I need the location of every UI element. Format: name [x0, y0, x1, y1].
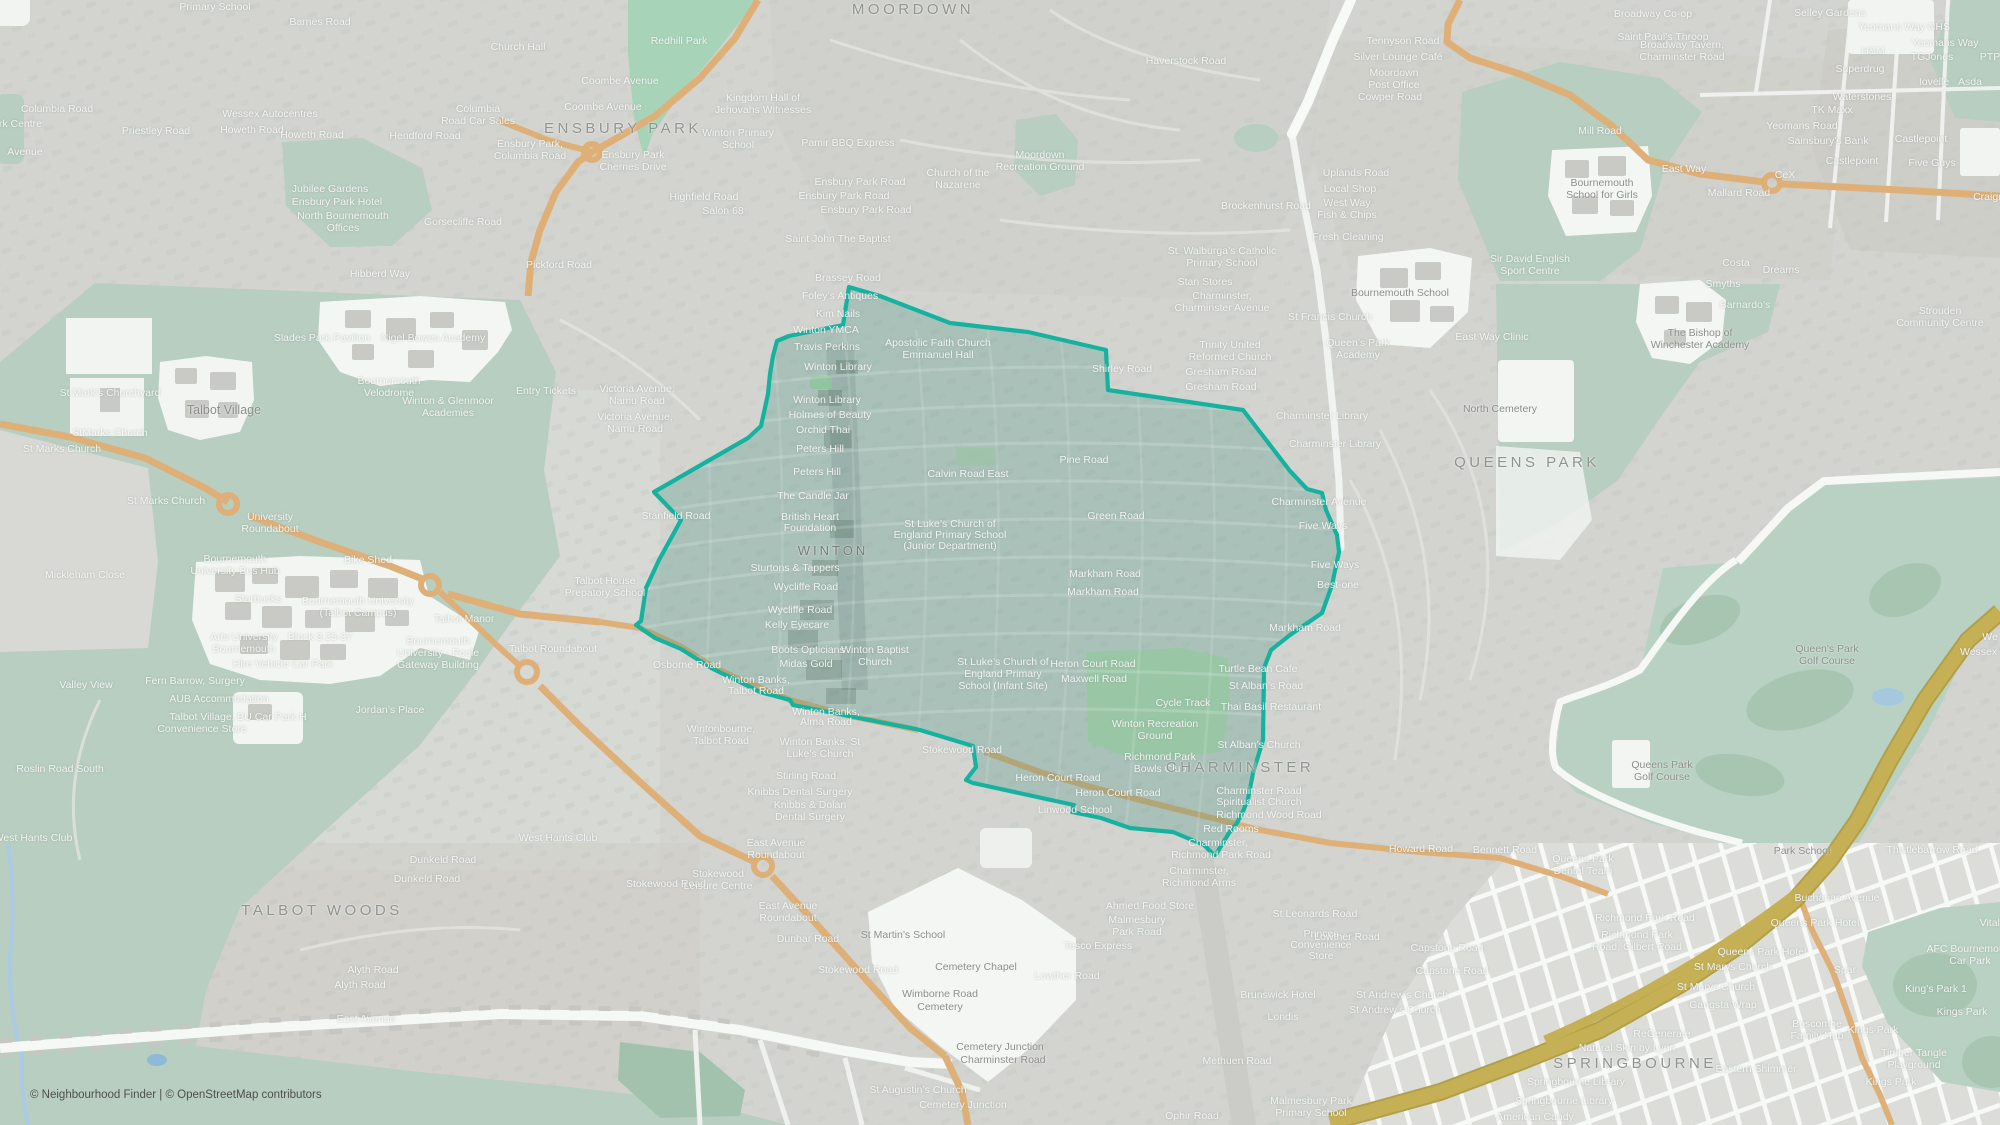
svg-text:Golf Course: Golf Course — [1634, 771, 1690, 783]
svg-text:Dreams: Dreams — [1763, 264, 1800, 276]
svg-text:St Augustin’s Church: St Augustin’s Church — [869, 1084, 966, 1096]
svg-text:Turtle Bean Cafe: Turtle Bean Cafe — [1219, 663, 1298, 675]
svg-text:Gateway Building: Gateway Building — [397, 659, 479, 671]
svg-text:St Marks Church: St Marks Church — [23, 443, 101, 455]
svg-text:Silver Lounge Café: Silver Lounge Café — [1353, 51, 1442, 63]
svg-text:SPRINGBOURNE: SPRINGBOURNE — [1553, 1055, 1717, 1072]
svg-text:Arts University: Arts University — [210, 631, 278, 643]
svg-text:Ensbury Park Road: Ensbury Park Road — [820, 204, 911, 216]
svg-text:Park Centre: Park Centre — [0, 118, 42, 130]
svg-text:Five Guys: Five Guys — [1908, 157, 1955, 169]
svg-text:Bournemouth University: Bournemouth University — [302, 595, 415, 607]
svg-text:Local Shop: Local Shop — [1324, 183, 1377, 195]
svg-text:Bournemouth: Bournemouth — [357, 375, 420, 387]
svg-text:Bournemouth: Bournemouth — [1570, 177, 1633, 189]
svg-text:Heron Court Road: Heron Court Road — [1015, 772, 1100, 784]
svg-text:Cherries Drive: Cherries Drive — [599, 161, 666, 173]
svg-text:Cemetery Chapel: Cemetery Chapel — [935, 961, 1017, 973]
svg-text:Hendford Road: Hendford Road — [389, 130, 460, 142]
svg-text:Ahmed Food Store: Ahmed Food Store — [1106, 900, 1194, 912]
svg-text:Wycliffe Road: Wycliffe Road — [774, 581, 839, 593]
svg-text:Church: Church — [858, 656, 892, 668]
svg-text:Londis: Londis — [1268, 1011, 1299, 1023]
svg-text:Roundabout: Roundabout — [241, 523, 298, 535]
svg-text:Salon 68: Salon 68 — [702, 205, 744, 217]
svg-text:Queens Park: Queens Park — [1552, 853, 1614, 865]
svg-text:We: We — [1982, 631, 1998, 643]
svg-text:TGJones: TGJones — [1911, 51, 1954, 63]
svg-text:Craigm: Craigm — [1973, 191, 2000, 203]
svg-text:Convenience Store: Convenience Store — [157, 723, 246, 735]
svg-text:Dunkeld Road: Dunkeld Road — [394, 873, 461, 885]
svg-text:Alma Road: Alma Road — [800, 716, 852, 728]
svg-text:Vitality: Vitality — [1980, 917, 2000, 929]
svg-text:Primary School: Primary School — [179, 1, 250, 13]
svg-text:Spar: Spar — [1834, 964, 1857, 976]
svg-text:Sturtons & Tappers: Sturtons & Tappers — [750, 562, 839, 574]
svg-text:Winton Library: Winton Library — [804, 361, 872, 373]
svg-text:WINTON: WINTON — [798, 543, 868, 558]
svg-text:Winton Recreation: Winton Recreation — [1112, 718, 1199, 730]
svg-text:Yeomans Way NHS: Yeomans Way NHS — [1858, 21, 1950, 33]
svg-text:St Andrew’s Church: St Andrew’s Church — [1356, 989, 1448, 1001]
svg-text:Academies: Academies — [422, 407, 474, 419]
svg-text:Kelly Eyecare: Kelly Eyecare — [765, 619, 829, 631]
svg-text:Best-one: Best-one — [1317, 579, 1359, 591]
svg-text:Saint John The Baptist: Saint John The Baptist — [785, 233, 891, 245]
svg-text:Markham Road: Markham Road — [1067, 586, 1139, 598]
svg-text:Starbucks: Starbucks — [235, 593, 282, 605]
svg-text:Victoria Avenue,: Victoria Avenue, — [597, 411, 673, 423]
svg-text:Fresh Cleaning: Fresh Cleaning — [1312, 231, 1383, 243]
svg-text:Highfield Road: Highfield Road — [670, 191, 739, 203]
svg-text:Bournemouth School: Bournemouth School — [1351, 287, 1449, 299]
svg-text:ENSBURY PARK: ENSBURY PARK — [544, 120, 702, 137]
svg-text:Peters Hill: Peters Hill — [793, 466, 841, 478]
svg-text:Victoria Avenue,: Victoria Avenue, — [599, 383, 675, 395]
svg-text:Bournemouth: Bournemouth — [203, 553, 266, 565]
svg-text:Smyths: Smyths — [1705, 278, 1740, 290]
svg-text:Academy: Academy — [1336, 349, 1381, 361]
svg-text:North Bournemouth: North Bournemouth — [297, 210, 389, 222]
svg-text:Ensbury Park: Ensbury Park — [601, 149, 665, 161]
svg-text:Priestley Road: Priestley Road — [122, 125, 190, 137]
svg-text:Yeomans Way: Yeomans Way — [1912, 37, 1980, 49]
svg-text:Peters Hill: Peters Hill — [796, 443, 844, 455]
svg-text:Calvin Road East: Calvin Road East — [927, 468, 1008, 480]
svg-text:Luke’s Church: Luke’s Church — [787, 748, 854, 760]
svg-text:Recreation Ground: Recreation Ground — [996, 161, 1085, 173]
svg-text:Costa: Costa — [1722, 257, 1750, 269]
svg-text:AUB Accommodation: AUB Accommodation — [169, 693, 268, 705]
svg-text:Wycliffe Road: Wycliffe Road — [768, 604, 833, 616]
svg-text:Dental Team: Dental Team — [1554, 865, 1613, 877]
svg-text:Kim Nails: Kim Nails — [816, 308, 860, 320]
svg-text:St Francis Church: St Francis Church — [1288, 311, 1372, 323]
svg-text:Wessex Autocentres: Wessex Autocentres — [222, 108, 318, 120]
svg-text:Dunkeld Road: Dunkeld Road — [410, 854, 477, 866]
svg-text:Shirley Road: Shirley Road — [1092, 363, 1152, 375]
svg-text:Knibbs & Dolan: Knibbs & Dolan — [774, 799, 847, 811]
svg-text:Trinity United: Trinity United — [1199, 339, 1261, 351]
svg-text:Apostolic Faith Church: Apostolic Faith Church — [885, 337, 991, 349]
svg-text:Namu Road: Namu Road — [607, 423, 663, 435]
svg-text:Heron Court Road: Heron Court Road — [1075, 787, 1160, 799]
svg-text:Stokewood Road: Stokewood Road — [818, 964, 898, 976]
svg-text:Nigel Bowes Academy: Nigel Bowes Academy — [381, 332, 486, 344]
svg-text:Kings Park: Kings Park — [1848, 1024, 1900, 1036]
svg-text:Cemetery Junction: Cemetery Junction — [956, 1041, 1044, 1053]
svg-text:Namu Road: Namu Road — [609, 395, 665, 407]
svg-text:Sport Centre: Sport Centre — [1500, 265, 1560, 277]
svg-text:St Andrew’s Church: St Andrew’s Church — [1349, 1004, 1441, 1016]
svg-text:Lowther Road: Lowther Road — [1314, 931, 1380, 943]
svg-text:St Marys Church: St Marys Church — [1694, 961, 1772, 973]
svg-text:Five Ways: Five Ways — [1311, 559, 1360, 571]
svg-text:Bournemouth: Bournemouth — [406, 635, 469, 647]
svg-text:Boscombe: Boscombe — [1792, 1018, 1842, 1030]
svg-text:Thistlebarrow Road: Thistlebarrow Road — [1886, 844, 1977, 856]
svg-text:Stanfield Road: Stanfield Road — [642, 510, 711, 522]
svg-text:Stan Stores: Stan Stores — [1178, 276, 1233, 288]
svg-text:Stokewood: Stokewood — [692, 868, 744, 880]
svg-text:Five Ways: Five Ways — [1299, 520, 1348, 532]
svg-text:Fish & Chips: Fish & Chips — [1317, 209, 1377, 221]
svg-text:Ensbury Park,: Ensbury Park, — [497, 138, 563, 150]
svg-text:Pamir BBQ Express: Pamir BBQ Express — [801, 137, 894, 149]
svg-text:Winton YMCA: Winton YMCA — [793, 324, 859, 336]
svg-text:Block 3 25-37: Block 3 25-37 — [288, 631, 352, 643]
svg-text:Green Road: Green Road — [1087, 510, 1144, 522]
svg-text:Fern Barrow, Surgery: Fern Barrow, Surgery — [145, 675, 246, 687]
svg-text:Gresham Road: Gresham Road — [1185, 366, 1256, 378]
svg-text:Charminster,: Charminster, — [1192, 290, 1252, 302]
svg-text:Foundation: Foundation — [784, 522, 837, 534]
svg-text:Park Road: Park Road — [1112, 926, 1162, 938]
svg-text:Columbia Road: Columbia Road — [21, 103, 94, 115]
svg-text:Howeth Road: Howeth Road — [280, 129, 344, 141]
svg-text:Haverstock Road: Haverstock Road — [1146, 55, 1227, 67]
svg-text:Superdrug: Superdrug — [1835, 63, 1884, 75]
svg-text:Cemetery Junction: Cemetery Junction — [919, 1099, 1007, 1111]
svg-text:Queens Park Hotel: Queens Park Hotel — [1771, 917, 1860, 929]
svg-text:Eastern Shimmer: Eastern Shimmer — [1715, 1063, 1797, 1075]
svg-text:Talbot Road: Talbot Road — [693, 735, 749, 747]
svg-text:Dental Surgery: Dental Surgery — [775, 811, 846, 823]
svg-text:Mill Road: Mill Road — [1578, 125, 1622, 137]
svg-text:Stirling Road: Stirling Road — [776, 770, 836, 782]
svg-text:St Alban’s Church: St Alban’s Church — [1217, 739, 1300, 751]
svg-text:Ensbury Park Hotel: Ensbury Park Hotel — [292, 196, 382, 208]
svg-text:Post Office: Post Office — [1368, 79, 1419, 91]
svg-text:Hire Vehicle Car Park: Hire Vehicle Car Park — [233, 658, 334, 670]
svg-text:St Alban’s Road: St Alban’s Road — [1229, 680, 1304, 692]
svg-text:Queen’s Park: Queen’s Park — [1326, 337, 1390, 349]
svg-text:Barnardo’s: Barnardo’s — [1720, 299, 1771, 311]
svg-text:Road, Gilbert Road: Road, Gilbert Road — [1592, 941, 1682, 953]
svg-text:Columbia Road: Columbia Road — [494, 150, 567, 162]
svg-text:Roslin Road South: Roslin Road South — [16, 763, 104, 775]
svg-text:Brassey Road: Brassey Road — [815, 272, 881, 284]
svg-text:Entry Tickets: Entry Tickets — [516, 385, 576, 397]
svg-text:Charminster,: Charminster, — [1169, 865, 1229, 877]
svg-text:East Avenue: East Avenue — [747, 837, 806, 849]
svg-text:H&M: H&M — [1861, 45, 1884, 57]
svg-text:Winton Baptist: Winton Baptist — [841, 644, 909, 656]
svg-text:Richmond Park Road: Richmond Park Road — [1171, 849, 1271, 861]
svg-text:Winchester Academy: Winchester Academy — [1651, 339, 1750, 351]
svg-text:St Mark’s Churchyard: St Mark’s Churchyard — [60, 387, 161, 399]
svg-text:Talbot Village: Talbot Village — [187, 403, 261, 417]
svg-text:West Hants Club: West Hants Club — [0, 832, 72, 844]
svg-text:Charminster Avenue: Charminster Avenue — [1272, 496, 1367, 508]
svg-text:Roundabout: Roundabout — [759, 912, 816, 924]
svg-text:St. Walburga’s Catholic: St. Walburga’s Catholic — [1168, 245, 1277, 257]
svg-text:Alyth Road: Alyth Road — [347, 964, 399, 976]
svg-text:Prepatory School: Prepatory School — [565, 587, 646, 599]
svg-text:Wessex W: Wessex W — [1960, 646, 2000, 658]
svg-text:Wintonbourne,: Wintonbourne, — [687, 723, 755, 735]
svg-text:Markham Road: Markham Road — [1069, 568, 1141, 580]
svg-text:Iovelle: Iovelle — [1919, 76, 1950, 88]
svg-text:Red Rooms: Red Rooms — [1203, 823, 1258, 835]
svg-text:Foley’s Antiques: Foley’s Antiques — [802, 290, 878, 302]
svg-text:(Talbot Campus): (Talbot Campus) — [319, 607, 396, 619]
svg-text:CHARMINSTER: CHARMINSTER — [1166, 759, 1315, 776]
svg-text:Avenue: Avenue — [7, 146, 43, 158]
svg-text:University - Poole: University - Poole — [397, 647, 479, 659]
svg-text:Roundabout: Roundabout — [747, 849, 804, 861]
svg-text:East Avenue: East Avenue — [337, 1013, 396, 1025]
svg-text:Midas Gold: Midas Gold — [779, 658, 832, 670]
svg-text:St Luke’s Church of: St Luke’s Church of — [957, 656, 1049, 668]
svg-text:Winton Banks, St: Winton Banks, St — [780, 736, 861, 748]
svg-text:Sir David English: Sir David English — [1490, 253, 1570, 265]
svg-text:Columbia: Columbia — [456, 103, 501, 115]
svg-text:PTP: PTP — [1980, 51, 2000, 63]
svg-text:Mallard Road: Mallard Road — [1708, 187, 1771, 199]
svg-text:East Avenue: East Avenue — [759, 900, 818, 912]
svg-text:Malmesbury: Malmesbury — [1108, 914, 1166, 926]
svg-text:Charminster Avenue: Charminster Avenue — [1175, 302, 1270, 314]
svg-text:Brockenhurst Road: Brockenhurst Road — [1221, 200, 1311, 212]
svg-text:Talbot House: Talbot House — [574, 575, 635, 587]
svg-text:School for Girls: School for Girls — [1566, 189, 1638, 201]
svg-text:West Way: West Way — [1323, 197, 1371, 209]
svg-text:Ensbury Park Road: Ensbury Park Road — [814, 176, 905, 188]
svg-text:Pickford Road: Pickford Road — [526, 259, 592, 271]
svg-text:The Bishop of: The Bishop of — [1668, 327, 1733, 339]
svg-text:Jordan’s Place: Jordan’s Place — [356, 704, 425, 716]
svg-text:Nazarene: Nazarene — [935, 179, 981, 191]
svg-text:Family Hub: Family Hub — [1790, 1030, 1843, 1042]
svg-text:Richmond Park Road: Richmond Park Road — [1595, 912, 1695, 924]
svg-text:St Martin’s School: St Martin’s School — [861, 929, 945, 941]
svg-text:Uplands Road: Uplands Road — [1323, 167, 1390, 179]
svg-text:St Marks Church: St Marks Church — [127, 495, 205, 507]
svg-text:Natural Skin by Lynn: Natural Skin by Lynn — [1579, 1042, 1676, 1054]
svg-text:North Cemetery: North Cemetery — [1463, 403, 1538, 415]
svg-text:Castlepoint: Castlepoint — [1895, 133, 1948, 145]
svg-text:Charminster Library: Charminster Library — [1276, 410, 1369, 422]
svg-text:Talbot Village,: Talbot Village, — [169, 711, 234, 723]
svg-text:University: University — [247, 511, 294, 523]
svg-text:Pine Road: Pine Road — [1059, 454, 1108, 466]
svg-text:Church of the: Church of the — [926, 167, 989, 179]
svg-text:Barnes Road: Barnes Road — [289, 16, 350, 28]
svg-text:Stokewood Road: Stokewood Road — [922, 744, 1002, 756]
svg-text:Springbourne Library: Springbourne Library — [1527, 1076, 1626, 1088]
svg-text:Primary School: Primary School — [1275, 1107, 1346, 1119]
svg-text:England Primary: England Primary — [964, 668, 1042, 680]
svg-text:Selley Gardens: Selley Gardens — [1794, 7, 1866, 19]
svg-text:St Leonards Road: St Leonards Road — [1273, 908, 1358, 920]
svg-text:Playground: Playground — [1887, 1059, 1940, 1071]
svg-text:Alyth Road: Alyth Road — [334, 979, 386, 991]
svg-text:Winton Primary: Winton Primary — [702, 127, 775, 139]
svg-text:Richmond Wood Road: Richmond Wood Road — [1216, 809, 1322, 821]
svg-text:Buchanan Avenue: Buchanan Avenue — [1794, 892, 1879, 904]
svg-text:Thai Basil Restaurant: Thai Basil Restaurant — [1221, 701, 1321, 713]
svg-text:MOORDOWN: MOORDOWN — [852, 1, 974, 18]
svg-text:Winton & Glenmoor: Winton & Glenmoor — [402, 395, 494, 407]
svg-text:Holmes of Beauty: Holmes of Beauty — [789, 409, 873, 421]
svg-text:Malmesbury Park: Malmesbury Park — [1270, 1095, 1352, 1107]
svg-text:Valley View: Valley View — [59, 679, 113, 691]
svg-text:Osborne Road: Osborne Road — [653, 659, 721, 671]
svg-text:Asda: Asda — [1958, 76, 1982, 88]
svg-text:Cemetery: Cemetery — [917, 1001, 963, 1013]
svg-text:Spiritualist Church: Spiritualist Church — [1216, 796, 1301, 808]
svg-text:Jehovahs Witnesses: Jehovahs Witnesses — [715, 104, 811, 116]
svg-text:Car Park: Car Park — [1949, 955, 1991, 967]
svg-text:The Candle Jar: The Candle Jar — [777, 490, 849, 502]
svg-text:Richmond Arms: Richmond Arms — [1162, 877, 1236, 889]
svg-text:Reformed Church: Reformed Church — [1189, 351, 1272, 363]
svg-text:Coombe Avenue: Coombe Avenue — [581, 75, 659, 87]
svg-text:TALBOT WOODS: TALBOT WOODS — [241, 902, 402, 919]
svg-text:Gresham Road: Gresham Road — [1185, 381, 1256, 393]
svg-text:Broadway Tavern,: Broadway Tavern, — [1640, 39, 1724, 51]
svg-text:Winton Library: Winton Library — [793, 394, 861, 406]
svg-text:Hibberd Way: Hibberd Way — [350, 268, 411, 280]
svg-text:Talbot Manor: Talbot Manor — [434, 613, 495, 625]
svg-text:Yeomans Road: Yeomans Road — [1766, 120, 1838, 132]
svg-text:Markham Road: Markham Road — [1269, 622, 1341, 634]
svg-text:Strouden: Strouden — [1919, 305, 1962, 317]
svg-text:Broadway Co-op: Broadway Co-op — [1614, 8, 1692, 20]
svg-text:Queens Park Hotel: Queens Park Hotel — [1718, 946, 1807, 958]
svg-text:StMarks Church: StMarks Church — [72, 427, 147, 439]
svg-text:American Candy: American Candy — [1496, 1111, 1574, 1123]
svg-text:Store: Store — [1308, 950, 1333, 962]
svg-text:Cycle Track: Cycle Track — [1156, 697, 1212, 709]
svg-text:East Way: East Way — [1662, 163, 1707, 175]
svg-text:Gorsecliffe Road: Gorsecliffe Road — [424, 216, 502, 228]
svg-text:Waterstones: Waterstones — [1833, 91, 1892, 103]
svg-text:Queens Park: Queens Park — [1631, 759, 1693, 771]
svg-text:Ophir Road: Ophir Road — [1165, 1110, 1219, 1122]
svg-text:Park School: Park School — [1774, 845, 1831, 857]
svg-text:© Neighbourhood Finder | © Ope: © Neighbourhood Finder | © OpenStreetMap… — [30, 1089, 322, 1101]
svg-text:Gangsta Wrap: Gangsta Wrap — [1689, 999, 1757, 1011]
svg-text:Methuen Road: Methuen Road — [1203, 1055, 1272, 1067]
svg-text:Springbourne Library: Springbourne Library — [1515, 1095, 1614, 1107]
svg-text:AFC Bournemouth: AFC Bournemouth — [1927, 943, 2000, 955]
svg-text:Church Hall: Church Hall — [491, 41, 546, 53]
svg-text:Lowther Road: Lowther Road — [1034, 970, 1100, 982]
svg-text:Moordown: Moordown — [1369, 67, 1418, 79]
svg-text:Redhill Park: Redhill Park — [651, 35, 708, 47]
svg-text:School: School — [722, 139, 754, 151]
svg-text:Tennyson Road: Tennyson Road — [1367, 35, 1440, 47]
svg-text:Charminster Road: Charminster Road — [960, 1054, 1045, 1066]
svg-text:Ensbury Park Road: Ensbury Park Road — [798, 190, 889, 202]
svg-text:King’s Park 1: King’s Park 1 — [1905, 983, 1967, 995]
svg-text:Ground: Ground — [1137, 730, 1172, 742]
svg-text:QUEENS PARK: QUEENS PARK — [1454, 454, 1600, 471]
svg-text:Maxwell Road: Maxwell Road — [1061, 673, 1127, 685]
svg-text:(Junior Department): (Junior Department) — [903, 540, 996, 552]
svg-text:Talbot Roundabout: Talbot Roundabout — [509, 643, 597, 655]
svg-text:Howeth Road: Howeth Road — [220, 124, 284, 136]
svg-text:Linwood School: Linwood School — [1038, 804, 1112, 816]
svg-text:Golf Course: Golf Course — [1799, 655, 1855, 667]
svg-text:St Marys Church: St Marys Church — [1677, 981, 1755, 993]
svg-text:Primary School: Primary School — [1186, 257, 1257, 269]
svg-text:Jubilee Gardens: Jubilee Gardens — [292, 183, 368, 195]
svg-text:Capstone Road: Capstone Road — [1411, 942, 1484, 954]
svg-text:Moordown: Moordown — [1015, 149, 1064, 161]
svg-text:East Way Clinic: East Way Clinic — [1455, 331, 1528, 343]
svg-text:Boots Opticians: Boots Opticians — [771, 644, 845, 656]
svg-text:Orchid Thai: Orchid Thai — [796, 424, 850, 436]
svg-text:Bike Shed: Bike Shed — [344, 554, 392, 566]
svg-text:Kingdom Hall of: Kingdom Hall of — [726, 92, 800, 104]
svg-text:Heron Court Road: Heron Court Road — [1050, 658, 1135, 670]
svg-text:Kings Park: Kings Park — [1866, 1076, 1918, 1088]
svg-text:Road Car Sales: Road Car Sales — [441, 115, 515, 127]
svg-text:Wimborne Road: Wimborne Road — [902, 988, 978, 1000]
svg-text:Knibbs Dental Surgery: Knibbs Dental Surgery — [747, 786, 853, 798]
svg-text:Tesco Express: Tesco Express — [1064, 940, 1132, 952]
svg-text:Castlepoint: Castlepoint — [1826, 155, 1879, 167]
svg-text:Timber Tangle: Timber Tangle — [1881, 1047, 1947, 1059]
svg-text:Offices: Offices — [327, 222, 359, 234]
svg-text:School (Infant Site): School (Infant Site) — [958, 680, 1047, 692]
svg-text:Charminster Library: Charminster Library — [1289, 438, 1382, 450]
svg-text:CeX: CeX — [1775, 169, 1795, 181]
svg-text:BU Car Park H: BU Car Park H — [237, 711, 306, 723]
svg-text:Charminster Road: Charminster Road — [1639, 51, 1724, 63]
svg-text:Dunbar Road: Dunbar Road — [777, 933, 840, 945]
svg-text:Talbot Road: Talbot Road — [728, 685, 784, 697]
svg-text:Cowper Road: Cowper Road — [1358, 91, 1422, 103]
svg-text:TK Maxx: TK Maxx — [1811, 104, 1853, 116]
svg-text:Howard Road: Howard Road — [1389, 843, 1453, 855]
svg-text:West Hants Club: West Hants Club — [519, 832, 598, 844]
svg-text:Mickleham Close: Mickleham Close — [45, 569, 125, 581]
svg-text:Richmond Park: Richmond Park — [1601, 929, 1674, 941]
svg-text:Bournemouth: Bournemouth — [212, 643, 275, 655]
svg-text:Slades Park Pavilion: Slades Park Pavilion — [274, 332, 370, 344]
svg-text:Community Centre: Community Centre — [1896, 317, 1984, 329]
svg-text:ReGenerate: ReGenerate — [1633, 1028, 1690, 1040]
svg-text:Bennett Road: Bennett Road — [1473, 844, 1537, 856]
svg-text:Sainsbury’s Bank: Sainsbury’s Bank — [1788, 135, 1870, 147]
svg-text:Charminster,: Charminster, — [1188, 837, 1248, 849]
svg-text:Leisure Centre: Leisure Centre — [684, 880, 753, 892]
